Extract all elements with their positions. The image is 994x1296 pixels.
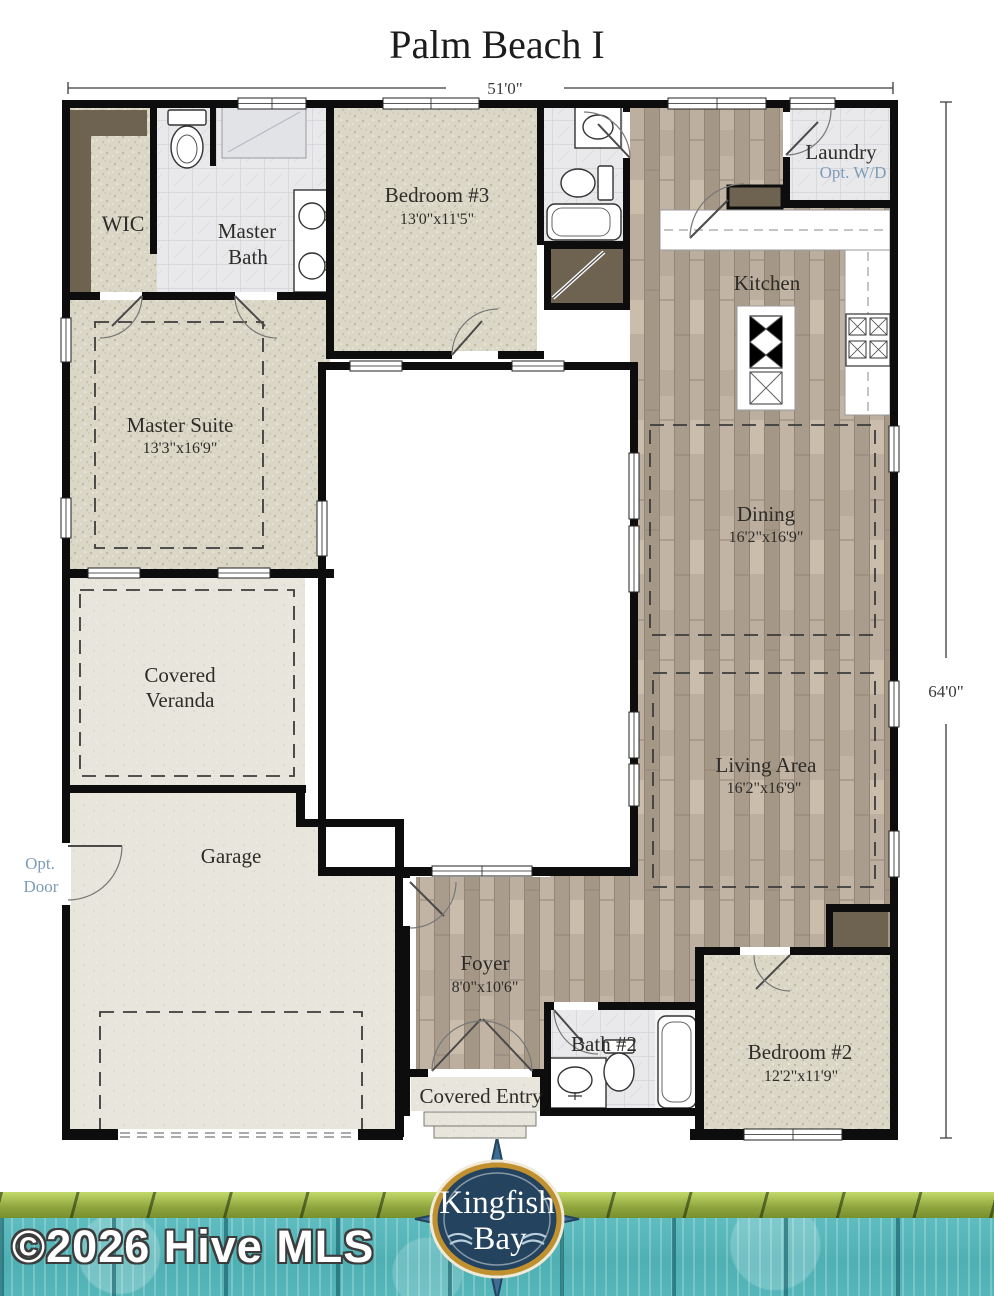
- kingfish-bay-logo: Kingfish Bay: [412, 1139, 592, 1296]
- master-toilet-icon: [168, 110, 206, 168]
- opt-door-label-1: Opt.: [25, 854, 55, 873]
- master-suite-label: Master Suite: [127, 413, 234, 437]
- copyright-text: ©2026 Hive MLS: [12, 1221, 374, 1273]
- master-bath-label-1: Master: [218, 219, 276, 243]
- opt-door-label-2: Door: [24, 877, 59, 896]
- living-area-size: 16'2"x16'9": [727, 780, 802, 797]
- dining-size: 16'2"x16'9": [729, 529, 804, 546]
- kitchen-label: Kitchen: [734, 271, 801, 295]
- laundry-option-label: Opt. W/D: [820, 163, 887, 182]
- bath2-label: Bath #2: [571, 1032, 637, 1056]
- foyer-size: 8'0"x10'6": [452, 979, 519, 996]
- veranda-label-2: Veranda: [146, 688, 215, 712]
- floor-plan-drawing: Palm Beach I 51'0" 64'0": [0, 0, 994, 1185]
- width-dimension: 51'0": [487, 79, 523, 98]
- bedroom2-label: Bedroom #2: [748, 1040, 852, 1064]
- page-title: Palm Beach I: [389, 22, 605, 67]
- covered-entry-label: Covered Entry: [419, 1084, 543, 1108]
- garage-label: Garage: [201, 844, 262, 868]
- logo-text-line1: Kingfish: [439, 1185, 555, 1221]
- dining-label: Dining: [737, 502, 796, 526]
- logo-text-line2: Bay: [473, 1221, 527, 1257]
- master-suite-size: 13'3"x16'9": [143, 440, 218, 457]
- footer-banner: ©2026 Hive MLS Kingfish Bay: [0, 1185, 994, 1296]
- laundry-label: Laundry: [805, 140, 877, 164]
- master-bath-label-2: Bath: [228, 245, 268, 269]
- living-area-label: Living Area: [716, 753, 818, 777]
- wic-label: WIC: [102, 211, 145, 236]
- stove-icon: [846, 314, 890, 366]
- bedroom2-size: 12'2"x11'9": [764, 1068, 838, 1085]
- height-dimension: 64'0": [928, 682, 964, 701]
- height-dimension-line: [940, 102, 952, 1138]
- width-dimension-line: [68, 82, 893, 94]
- veranda-label-1: Covered: [144, 663, 216, 687]
- bedroom3-size: 13'0"x11'5": [400, 211, 474, 228]
- foyer-label: Foyer: [461, 951, 510, 975]
- bedroom3-label: Bedroom #3: [385, 183, 489, 207]
- floor-plan-page: Palm Beach I 51'0" 64'0": [0, 0, 994, 1296]
